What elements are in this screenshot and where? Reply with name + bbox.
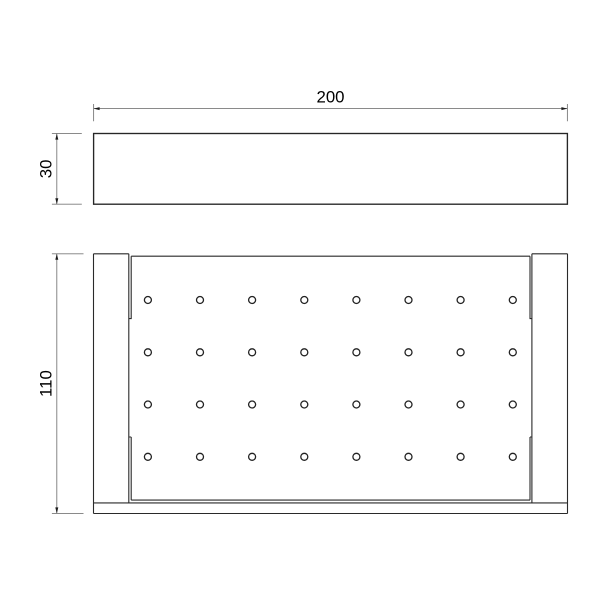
svg-text:30: 30: [36, 160, 55, 179]
svg-text:110: 110: [36, 370, 55, 397]
svg-text:200: 200: [317, 88, 345, 107]
